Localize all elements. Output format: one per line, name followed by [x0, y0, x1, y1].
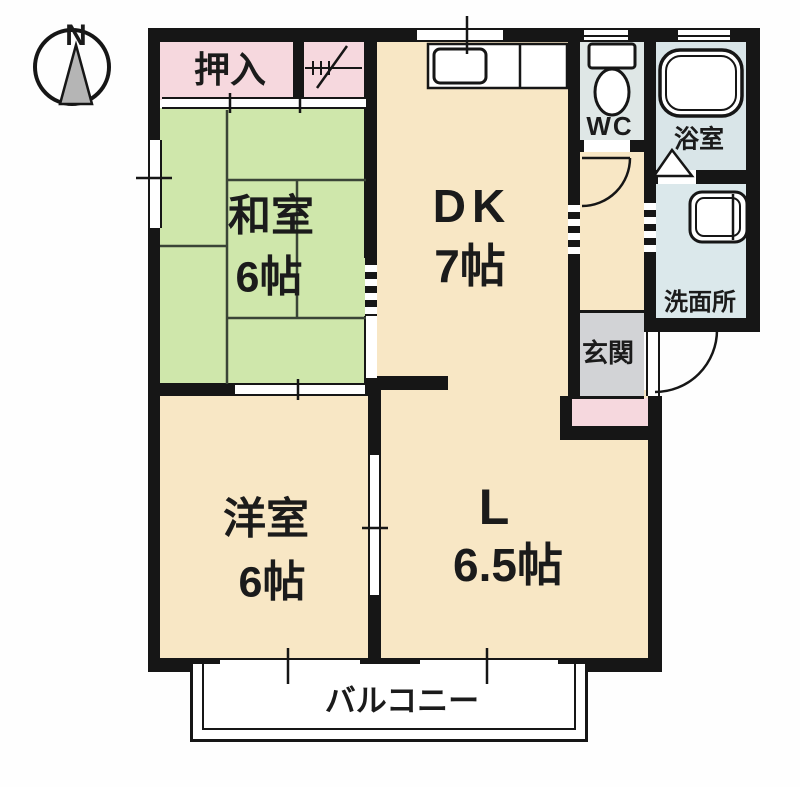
wall	[648, 318, 760, 332]
sliding-door	[644, 196, 656, 258]
window	[584, 28, 628, 42]
wall	[560, 426, 660, 440]
wall	[293, 28, 304, 108]
compass-north-label: N	[65, 21, 87, 51]
room-hallway	[580, 142, 644, 312]
room-closet-hatch	[303, 40, 365, 100]
entrance-step-line	[580, 310, 644, 313]
entrance-step-line	[572, 396, 644, 399]
entrance-door-arc	[655, 330, 717, 392]
entrance-door-opening	[646, 332, 660, 396]
balcony-label: バルコニー	[325, 686, 479, 717]
western-room-size: 6帖	[239, 562, 306, 605]
floor-plan: N 押入 和室 6帖 DK 7帖 WC 浴室 洗面所 玄関 洋室 6帖 L 6.…	[0, 0, 800, 787]
door-opening	[584, 140, 630, 152]
living-western-sliding-door	[368, 455, 381, 595]
wc-label: WC	[586, 113, 633, 139]
wall	[364, 28, 377, 258]
entrance-label: 玄関	[582, 340, 634, 366]
bathroom-label: 浴室	[674, 128, 724, 153]
sliding-door	[365, 258, 377, 316]
sliding-door	[568, 198, 580, 260]
room-entrance-storage	[572, 398, 648, 428]
closet-label: 押入	[194, 52, 266, 88]
western-room-name: 洋室	[223, 499, 309, 542]
window	[148, 140, 162, 228]
dk-name: DK	[433, 183, 511, 229]
living-name: L	[479, 482, 510, 532]
door-opening	[658, 170, 696, 184]
japanese-room-south-sliding-door	[235, 383, 365, 396]
wall	[148, 28, 160, 672]
window	[678, 28, 730, 42]
dk-size: 7帖	[434, 243, 506, 289]
wall-opening	[364, 316, 377, 378]
washroom-label: 洗面所	[664, 291, 736, 315]
living-size: 6.5帖	[453, 542, 563, 588]
japanese-room-size: 6帖	[236, 257, 303, 300]
window	[417, 28, 503, 42]
japanese-room-name: 和室	[228, 196, 314, 239]
closet-sliding-door	[162, 97, 366, 109]
wall	[746, 28, 760, 332]
wall	[644, 28, 656, 332]
room-japanese	[160, 108, 365, 384]
